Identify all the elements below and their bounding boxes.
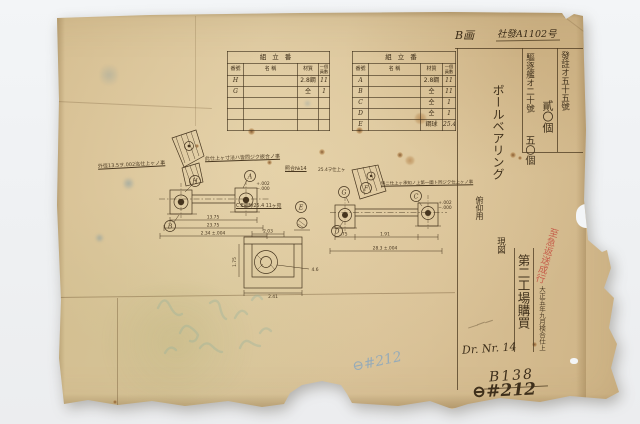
crease-line: [563, 16, 588, 35]
drawing-sheet: B画 社發A1102号 發註オ五十五號 驅逐艦オ二十號 貳〇個 五〇個 ボールベ…: [0, 0, 640, 424]
col-header-qty: 一個員數: [319, 64, 330, 76]
col-header-name: 名 稱: [369, 64, 421, 76]
order-qty-2: 五〇個: [523, 135, 533, 195]
table-title: 組立番: [353, 52, 456, 64]
title-block-rule: [455, 48, 583, 49]
table-row: D仝1: [353, 109, 456, 120]
order-qty-1: 貳〇個: [542, 100, 553, 164]
table-row: [228, 109, 330, 120]
blue-smudge: [100, 62, 118, 88]
col-header-material: 材質: [298, 64, 319, 76]
col-header-name: 名 稱: [244, 64, 298, 76]
dim-right-3: 28.3 ±.004: [373, 246, 398, 252]
part-label-b: B: [167, 223, 173, 230]
drawing-number: Dr. Nr. 14: [462, 340, 517, 357]
col-header-no: 番號: [228, 64, 244, 76]
dim-left-1: 13.75: [207, 215, 220, 221]
pencil-tick: [477, 322, 485, 326]
crease-line: [195, 16, 196, 126]
doc-number-underline: [496, 39, 560, 41]
table-row: A2.8鋼11: [353, 76, 456, 87]
blue-pencil-number: ⊖#212: [351, 349, 403, 375]
genzu-label: 現図: [496, 237, 505, 263]
table-title: 組立番: [228, 52, 330, 64]
tolerance-minus: −.000: [256, 186, 270, 192]
col-header-no: 番號: [353, 64, 369, 76]
crease-line: [57, 101, 212, 109]
paper-shadow: B画 社發A1102号 發註オ五十五號 驅逐艦オ二十號 貳〇個 五〇個 ボールベ…: [0, 0, 640, 424]
parts-table-left: 組立番 番號 名 稱 材質 一個員數 H2.8鋼11 G仝1: [227, 51, 330, 131]
date-note: 大正五年九月検合仕上: [538, 286, 545, 374]
table-row: B仝11: [353, 87, 456, 98]
doc-mark: B画: [455, 27, 474, 43]
pencil-tick: [485, 320, 493, 323]
edge-shade-left: [57, 14, 65, 406]
part-label-d: D: [334, 228, 340, 235]
dim-detail-top: 2.03: [263, 229, 273, 235]
dim-left-3: 2.34 ±.004: [201, 231, 226, 237]
doc-number: 社發A1102号: [497, 26, 557, 40]
photo-background: B画 社發A1102号 發註オ五十五號 驅逐艦オ二十號 貳〇個 五〇個 ボールベ…: [0, 0, 640, 424]
title-block-rule: [514, 248, 515, 352]
stain-spot: [113, 400, 117, 404]
table-row: H2.8鋼11: [228, 76, 330, 87]
table-row: G仝1: [228, 87, 330, 98]
part-label-g: G: [342, 189, 347, 196]
stain-spot: [510, 152, 516, 158]
order-number-underline: [469, 402, 561, 406]
drawing-title: ボールベアリング: [492, 84, 504, 210]
part-label-e: E: [298, 204, 304, 211]
dim-detail-bottom: 2.41: [268, 294, 278, 300]
col-header-qty: 一個員數: [443, 64, 456, 76]
dim-right-2: 1.91: [380, 232, 390, 238]
part-label-h: H: [191, 178, 198, 185]
drawing-canvas: H A B E F G C D 13.75 23.75 2.34 ±.004 +…: [85, 125, 465, 305]
tear-damage: [570, 358, 578, 364]
table-row: C仝1: [353, 98, 456, 109]
dim-detail-right: 4.6: [312, 267, 319, 273]
title-block-rule: [557, 48, 558, 152]
tolerance-minus-right: −.000: [438, 205, 452, 211]
col-header-material: 材質: [421, 64, 443, 76]
order-number: ⊖#212: [472, 379, 537, 402]
table-row: [228, 98, 330, 109]
dim-left-2: 23.75: [207, 223, 220, 229]
parts-table-right: 組立番 番號 名 稱 材質 一個員數 A2.8鋼11 B仝11 C仝1 D仝1 …: [352, 51, 456, 131]
part-label-f: F: [363, 185, 369, 192]
part-label-c: C: [414, 193, 419, 200]
stain-spot: [518, 156, 522, 160]
tear-damage: [576, 204, 598, 228]
dim-right-1: .75: [341, 232, 348, 238]
order-column-1: 發註オ五十五號: [560, 51, 569, 149]
dim-detail-left: 1.75: [232, 257, 238, 267]
drawing-usage: 俯仰用: [475, 196, 483, 236]
edge-shade-top: [57, 12, 585, 18]
part-label-a: A: [247, 173, 253, 180]
